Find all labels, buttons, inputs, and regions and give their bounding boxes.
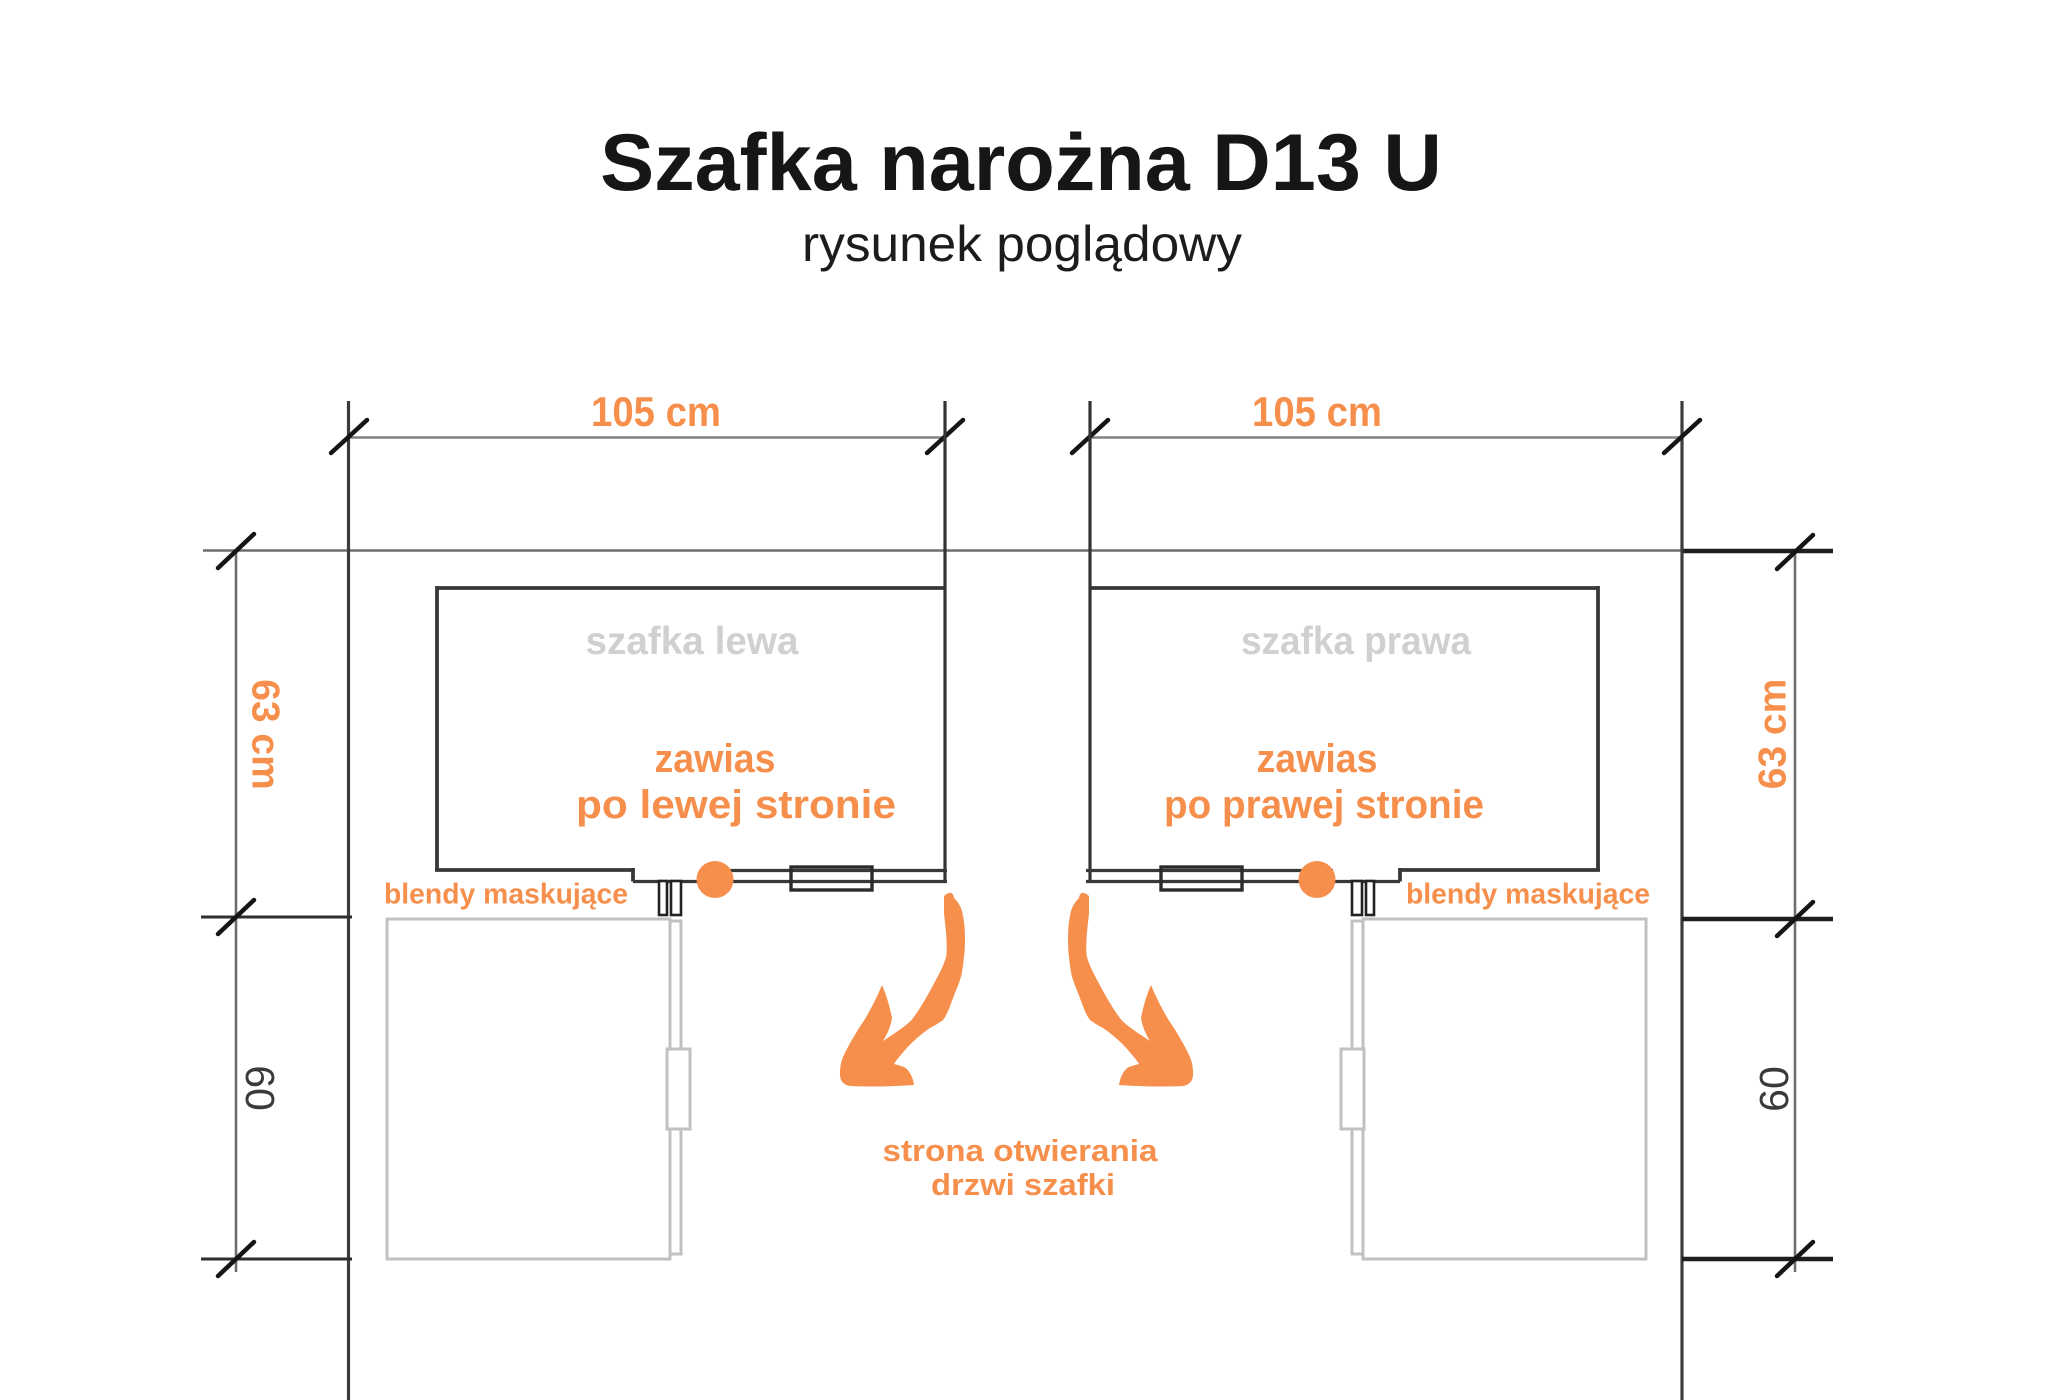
- svg-text:szafka prawa: szafka prawa: [1241, 620, 1471, 663]
- svg-text:63 cm: 63 cm: [244, 679, 287, 790]
- svg-text:po lewej stronie: po lewej stronie: [576, 783, 896, 827]
- svg-text:blendy maskujące: blendy maskujące: [384, 879, 628, 911]
- svg-text:blendy maskujące: blendy maskujące: [1406, 879, 1650, 911]
- svg-text:Szafka narożna D13 U: Szafka narożna D13 U: [600, 118, 1442, 208]
- svg-text:60: 60: [1751, 1066, 1797, 1112]
- svg-text:105 cm: 105 cm: [1252, 388, 1382, 435]
- svg-text:60: 60: [237, 1065, 283, 1111]
- svg-text:strona otwierania: strona otwierania: [883, 1133, 1159, 1168]
- svg-text:zawias: zawias: [655, 737, 776, 781]
- svg-text:105 cm: 105 cm: [591, 388, 721, 435]
- svg-text:po prawej stronie: po prawej stronie: [1164, 783, 1484, 827]
- svg-text:szafka lewa: szafka lewa: [586, 620, 799, 663]
- svg-text:drzwi szafki: drzwi szafki: [931, 1167, 1115, 1202]
- svg-text:63 cm: 63 cm: [1751, 679, 1794, 790]
- svg-text:rysunek poglądowy: rysunek poglądowy: [802, 216, 1242, 272]
- svg-text:zawias: zawias: [1257, 737, 1378, 781]
